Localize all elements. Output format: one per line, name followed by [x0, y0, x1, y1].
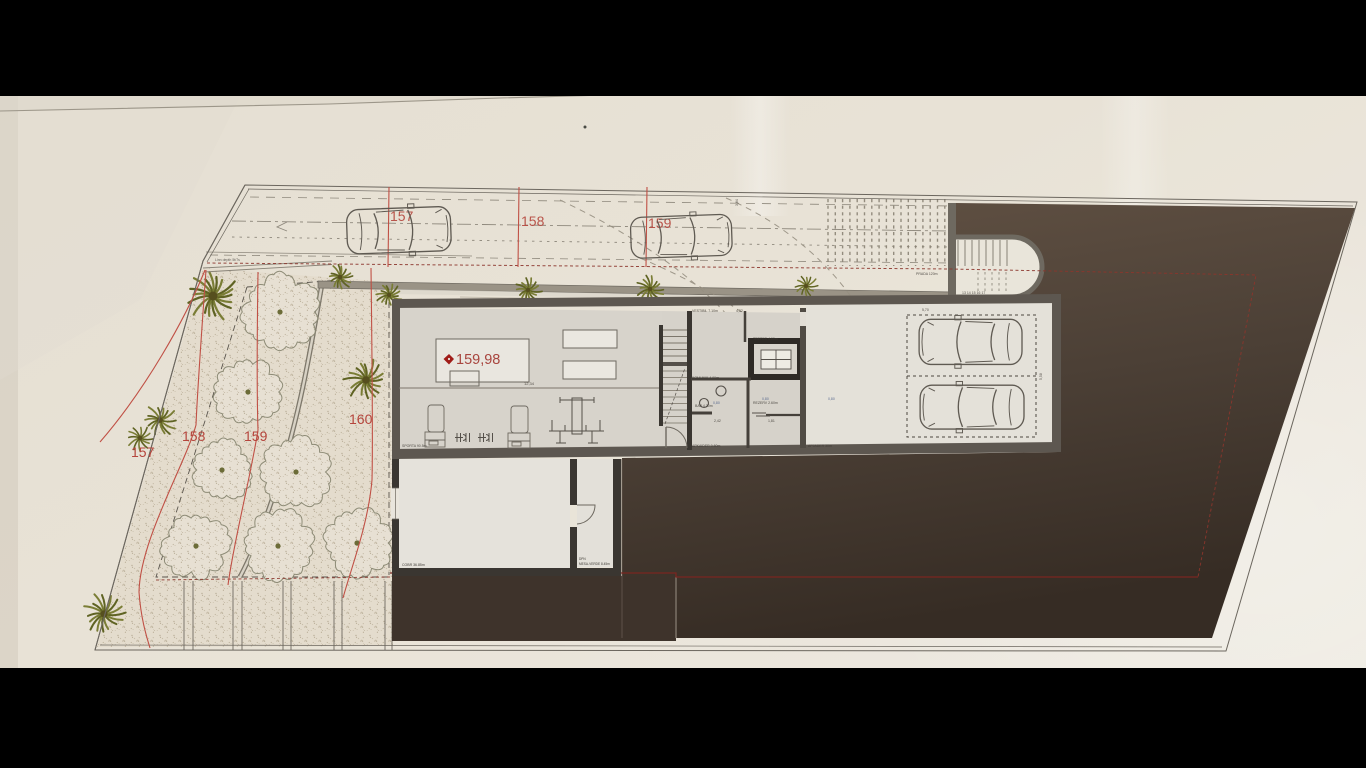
svg-text:159,98: 159,98 [456, 352, 500, 368]
svg-text:158: 158 [182, 428, 206, 444]
svg-text:0,80: 0,80 [762, 397, 769, 401]
svg-text:0,80: 0,80 [713, 401, 720, 405]
svg-text:4,32: 4,32 [736, 309, 743, 313]
svg-text:PRADA 120m: PRADA 120m [916, 272, 938, 276]
svg-text:APJADER 30m: APJADER 30m [808, 444, 832, 448]
svg-text:REZERV 2.60m: REZERV 2.60m [753, 401, 778, 405]
svg-text:5,58: 5,58 [1039, 373, 1043, 380]
svg-text:2,42: 2,42 [714, 419, 721, 423]
svg-text:APKAIDER 9.60m: APKAIDER 9.60m [692, 444, 720, 448]
svg-text:TREPES 4.00m: TREPES 4.00m [753, 337, 778, 341]
svg-text:BAP 4.30m: BAP 4.30m [695, 404, 713, 408]
svg-text:1,81: 1,81 [768, 419, 775, 423]
svg-text:159: 159 [244, 428, 268, 444]
svg-text:SPORTA 90.5m: SPORTA 90.5m [402, 444, 427, 448]
svg-text:3,84: 3,84 [735, 199, 739, 206]
svg-text:12,34: 12,34 [524, 381, 535, 386]
svg-text:VESTIBIL 7.10m: VESTIBIL 7.10m [692, 309, 718, 313]
svg-text:5,70: 5,70 [922, 308, 929, 312]
svg-text:KOMUNIK 4.90m: KOMUNIK 4.90m [692, 376, 719, 380]
svg-text:0,80: 0,80 [828, 397, 835, 401]
svg-text:13 14 15 16 17: 13 14 15 16 17 [962, 291, 985, 295]
svg-text:160: 160 [349, 411, 373, 427]
svg-text:MESA-VERDE 8.45m: MESA-VERDE 8.45m [579, 562, 610, 566]
svg-text:157: 157 [131, 444, 155, 460]
svg-text:DPN: DPN [579, 557, 586, 561]
svg-text:COBR 36.85m: COBR 36.85m [402, 563, 425, 567]
svg-text:Linn depth 5t/7s: Linn depth 5t/7s [215, 258, 240, 262]
svg-text:158: 158 [521, 213, 545, 229]
